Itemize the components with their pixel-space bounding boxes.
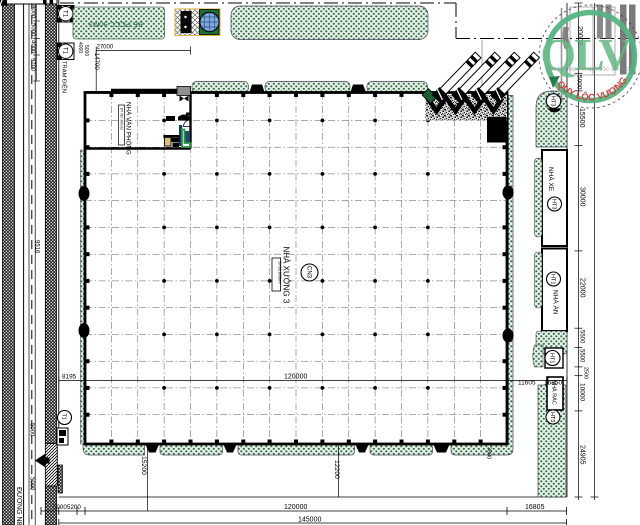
svg-text:TRẠM ĐIỆN: TRẠM ĐIỆN <box>61 61 69 93</box>
svg-text:8000: 8000 <box>30 5 36 19</box>
svg-text:27000: 27000 <box>97 45 114 51</box>
svg-text:120000: 120000 <box>284 374 307 381</box>
svg-text:5500: 5500 <box>579 330 585 344</box>
svg-text:HT1: HT1 <box>548 353 554 363</box>
svg-text:16850: 16850 <box>544 380 562 387</box>
svg-text:HT5: HT5 <box>549 412 555 422</box>
svg-text:24905: 24905 <box>579 445 586 465</box>
svg-text:HT1: HT1 <box>549 274 555 284</box>
svg-text:T1: T1 <box>62 47 68 55</box>
svg-text:30000: 30000 <box>579 187 586 207</box>
svg-text:5000: 5000 <box>29 423 35 437</box>
svg-text:2500: 2500 <box>583 367 589 379</box>
svg-text:15200: 15200 <box>140 456 147 475</box>
svg-text:5500: 5500 <box>579 349 585 363</box>
svg-text:9516: 9516 <box>34 240 40 254</box>
svg-text:4000: 4000 <box>30 40 36 54</box>
svg-text:120000: 120000 <box>284 504 307 511</box>
svg-text:5000: 5000 <box>29 477 35 491</box>
svg-text:5000: 5000 <box>30 23 36 37</box>
svg-text:3800: 3800 <box>486 447 492 459</box>
svg-text:NHÀ VĂN PHÒNG: NHÀ VĂN PHÒNG <box>125 102 134 155</box>
svg-text:16805: 16805 <box>525 504 545 511</box>
svg-text:DT XD: 480 m2: DT XD: 480 m2 <box>120 108 124 130</box>
svg-text:4000: 4000 <box>77 42 83 53</box>
svg-text:5000: 5000 <box>83 45 89 56</box>
svg-text:BẤT ĐỘNG SẢN QUÝ LỘC VƯỢNG: BẤT ĐỘNG SẢN QUÝ LỘC VƯỢNG <box>550 66 629 73</box>
svg-text:HT3: HT3 <box>550 199 556 209</box>
svg-text:14700: 14700 <box>93 53 99 70</box>
svg-text:HT3: HT3 <box>549 96 555 106</box>
svg-text:NHÀ XE: NHÀ XE <box>547 167 556 192</box>
svg-text:5200: 5200 <box>67 504 81 511</box>
svg-text:8195: 8195 <box>62 374 77 381</box>
svg-text:ĐƯỜNG N8: ĐƯỜNG N8 <box>15 487 24 525</box>
svg-text:10000: 10000 <box>579 383 586 401</box>
svg-text:22000: 22000 <box>579 278 586 298</box>
svg-text:5000: 5000 <box>53 504 67 511</box>
svg-text:11605: 11605 <box>518 380 536 387</box>
svg-text:CN3: CN3 <box>306 266 312 279</box>
svg-text:T1: T1 <box>60 414 66 420</box>
svg-text:NHÀ XƯỞNG 3: NHÀ XƯỞNG 3 <box>282 247 291 304</box>
svg-text:9700: 9700 <box>30 58 36 72</box>
svg-text:T1: T1 <box>62 10 68 18</box>
svg-text:12200: 12200 <box>333 460 340 479</box>
svg-text:145000: 145000 <box>298 517 321 524</box>
svg-text:BỂ PCCC 90M3: BỂ PCCC 90M3 <box>89 20 143 29</box>
svg-text:NHÀ ĂN: NHÀ ĂN <box>552 290 561 315</box>
svg-text:15500: 15500 <box>578 108 585 128</box>
